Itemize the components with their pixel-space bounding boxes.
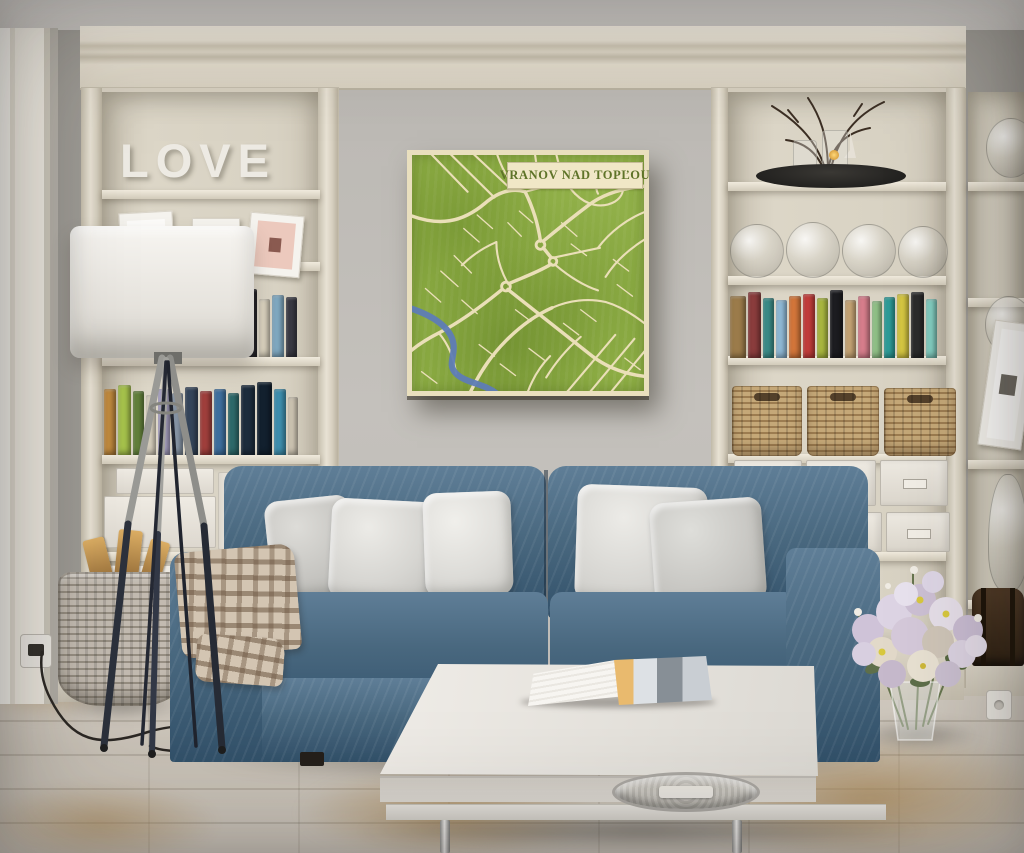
shelf [102, 190, 320, 199]
open-book-right-page [614, 656, 712, 706]
book-spine [803, 294, 815, 358]
table-leg [440, 820, 450, 853]
map-title: VRANOV NAD TOPĽOU [500, 168, 651, 183]
book-spine [926, 299, 937, 358]
throw-pillow-3 [422, 490, 514, 597]
book-spine [884, 297, 895, 358]
shelf [968, 460, 1024, 469]
wicker-basket [807, 386, 879, 456]
love-letters: LOVE [120, 133, 320, 191]
book-spine [817, 298, 828, 358]
frame-photo [999, 374, 1018, 396]
book-spine [897, 294, 909, 358]
book-spine [272, 295, 284, 357]
wicker-baskets-row [732, 386, 956, 456]
book-spine [858, 296, 870, 358]
map-roads-svg [412, 155, 644, 391]
book-spine [872, 301, 882, 358]
floor-lamp-shade [70, 226, 254, 358]
map-wall-art: VRANOV NAD TOPĽOU [407, 150, 649, 396]
book-spine [830, 290, 843, 358]
shelf [968, 182, 1024, 191]
book-spine [911, 292, 924, 358]
wicker-basket [732, 386, 802, 456]
book-spine [763, 298, 774, 358]
crown-molding [80, 26, 966, 90]
sofa-back-seam [544, 470, 548, 616]
frame-photo [268, 238, 281, 253]
sofa-foot [300, 752, 324, 766]
flower-vase [890, 682, 940, 740]
label-box [880, 460, 948, 506]
metal-tray [612, 772, 760, 812]
book-spine [748, 292, 761, 358]
glass-vase [842, 224, 896, 278]
book-spine [286, 297, 297, 357]
glass-vase [898, 226, 948, 278]
candle-flame [829, 150, 839, 160]
floor-lamp-tripod-svg [46, 352, 296, 762]
book-spine [730, 296, 746, 358]
decor-tray [756, 164, 906, 188]
glass-vase [786, 222, 840, 278]
wicker-basket [884, 388, 956, 456]
living-room-scene: LOVE [0, 0, 1024, 853]
throw-pillow-2 [327, 497, 436, 602]
book-spine [776, 300, 787, 358]
table-leg [732, 820, 742, 853]
flower-bouquet-svg [828, 534, 998, 744]
glass-vase [730, 224, 784, 278]
picture-frame [245, 212, 304, 278]
map-title-banner: VRANOV NAD TOPĽOU [507, 162, 643, 189]
book-spine [789, 296, 801, 358]
book-spine [259, 299, 270, 357]
glass-vases-row [730, 220, 948, 278]
book-spine [845, 300, 856, 358]
books-row [730, 286, 950, 358]
